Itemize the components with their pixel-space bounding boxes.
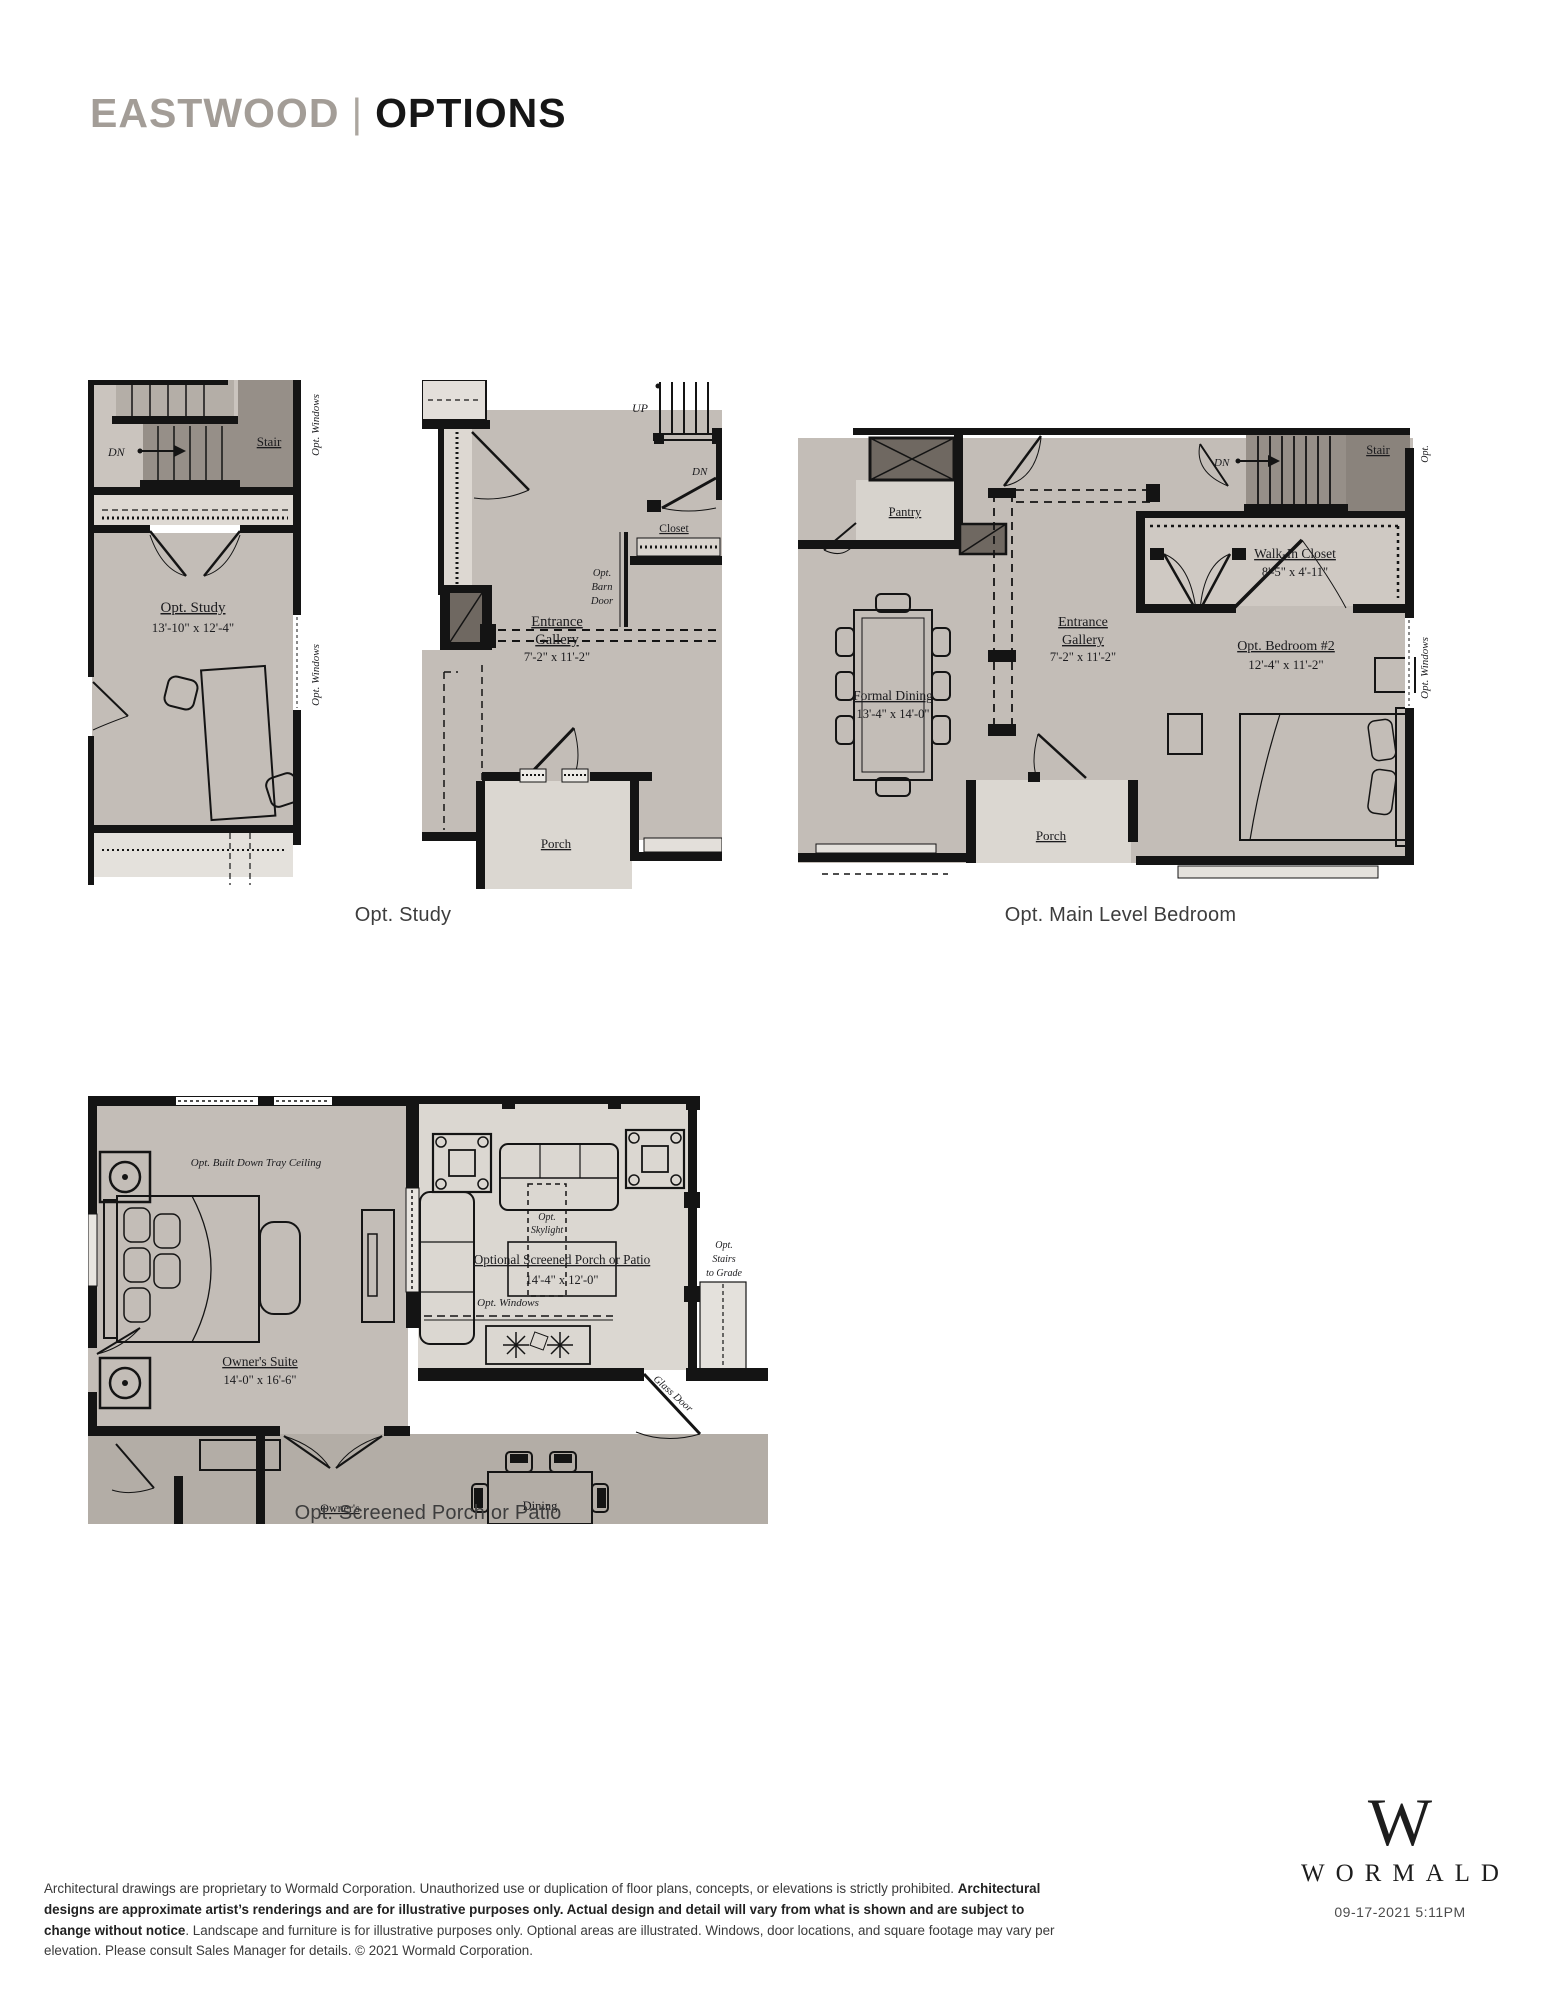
porch-stairs-label-2: Stairs [712,1254,735,1265]
floor-plan-main-level-bedroom: Pantry Formal Dining 13'-4" x 14'-0" Ent… [798,428,1443,903]
bedroom-gallery-label-1: Entrance [1058,615,1108,630]
bedroom-wic-label: Walk-In Closet [1254,546,1336,561]
print-timestamp: 09-17-2021 5:11PM [1280,1904,1520,1920]
floor-plan-screened-porch: Opt. Built Down Tray Ceiling Owner's Sui… [88,1096,768,1524]
porch-tray-ceiling-label: Opt. Built Down Tray Ceiling [191,1157,322,1169]
caption-main-level-bedroom: Opt. Main Level Bedroom [798,904,1443,927]
gallery-barn-door-3: Door [590,596,614,607]
floor-plan-entrance-gallery: UP DN Closet Opt. Barn Door Entrance Gal… [422,380,722,895]
gallery-porch-label: Porch [541,836,572,851]
wormald-monogram-logo: W [1280,1788,1520,1856]
legal-disclaimer: Architectural drawings are proprietary t… [44,1879,1062,1961]
porch-suite-label: Owner's Suite [222,1354,298,1369]
bedroom-opt-edge-label: Opt. [1420,445,1431,463]
floor-plan-study: DN Stair Op [88,380,333,892]
porch-title-dims: 14'-4" x 12'-0" [525,1273,598,1287]
porch-stairs-label-3: to Grade [706,1268,742,1279]
wormald-wordmark: WORMALD [1280,1860,1520,1888]
bedroom-gallery-dims: 7'-2" x 11'-2" [1050,650,1116,664]
disclaimer-text-2: . Landscape and furniture is for illustr… [44,1923,1054,1959]
section-title: OPTIONS [375,90,567,136]
bedroom-room-dims: 12'-4" x 11'-2" [1248,657,1323,672]
project-name: EASTWOOD [90,90,339,136]
study-stair-label: Stair [257,434,282,449]
gallery-room-label-2: Gallery [535,632,579,648]
gallery-closet-label: Closet [659,523,689,535]
study-opt-windows-upper: Opt. Windows [310,394,322,456]
gallery-room-label-1: Entrance [531,614,583,630]
bedroom-dining-dims: 13'-4" x 14'-0" [856,707,929,721]
page: EASTWOOD|OPTIONS [0,0,1545,2000]
title-divider: | [339,90,375,136]
caption-screened-porch: Opt. Screened Porch or Patio [88,1502,768,1525]
study-room-dims: 13'-10" x 12'-4" [152,620,234,635]
porch-title-label: Optional Screened Porch or Patio [474,1252,651,1267]
bedroom-pantry-label: Pantry [889,505,922,519]
gallery-up-label: UP [632,401,649,415]
gallery-barn-door-1: Opt. [593,568,611,579]
bedroom-wic-dims: 8'-5" x 4'-11" [1262,565,1328,579]
bedroom-dining-label: Formal Dining [853,688,933,703]
porch-stairs-label-1: Opt. [715,1240,733,1251]
bedroom-stair-label: Stair [1366,443,1390,457]
porch-skylight-label-2: Skylight [531,1225,563,1236]
bedroom-room-label: Opt. Bedroom #2 [1237,639,1335,654]
porch-opt-windows-label: Opt. Windows [477,1297,539,1309]
study-room-label: Opt. Study [160,600,226,616]
bedroom-dn-label: DN [1213,457,1230,469]
gallery-room-dims: 7'-2" x 11'-2" [524,650,590,664]
wormald-brand-block: W WORMALD 09-17-2021 5:11PM [1280,1788,1520,1920]
page-title: EASTWOOD|OPTIONS [90,90,567,137]
study-dn-label: DN [107,445,126,459]
gallery-dn-label: DN [691,466,708,478]
gallery-barn-door-2: Barn [592,582,613,593]
bedroom-opt-windows-label: Opt. Windows [1419,637,1431,699]
bedroom-gallery-label-2: Gallery [1062,633,1104,648]
caption-study: Opt. Study [88,904,718,927]
porch-skylight-label-1: Opt. [538,1212,556,1223]
study-opt-windows-lower: Opt. Windows [310,644,322,706]
porch-suite-dims: 14'-0" x 16'-6" [223,1373,296,1387]
bedroom-porch-label: Porch [1036,828,1067,843]
disclaimer-text-1: Architectural drawings are proprietary t… [44,1881,958,1896]
